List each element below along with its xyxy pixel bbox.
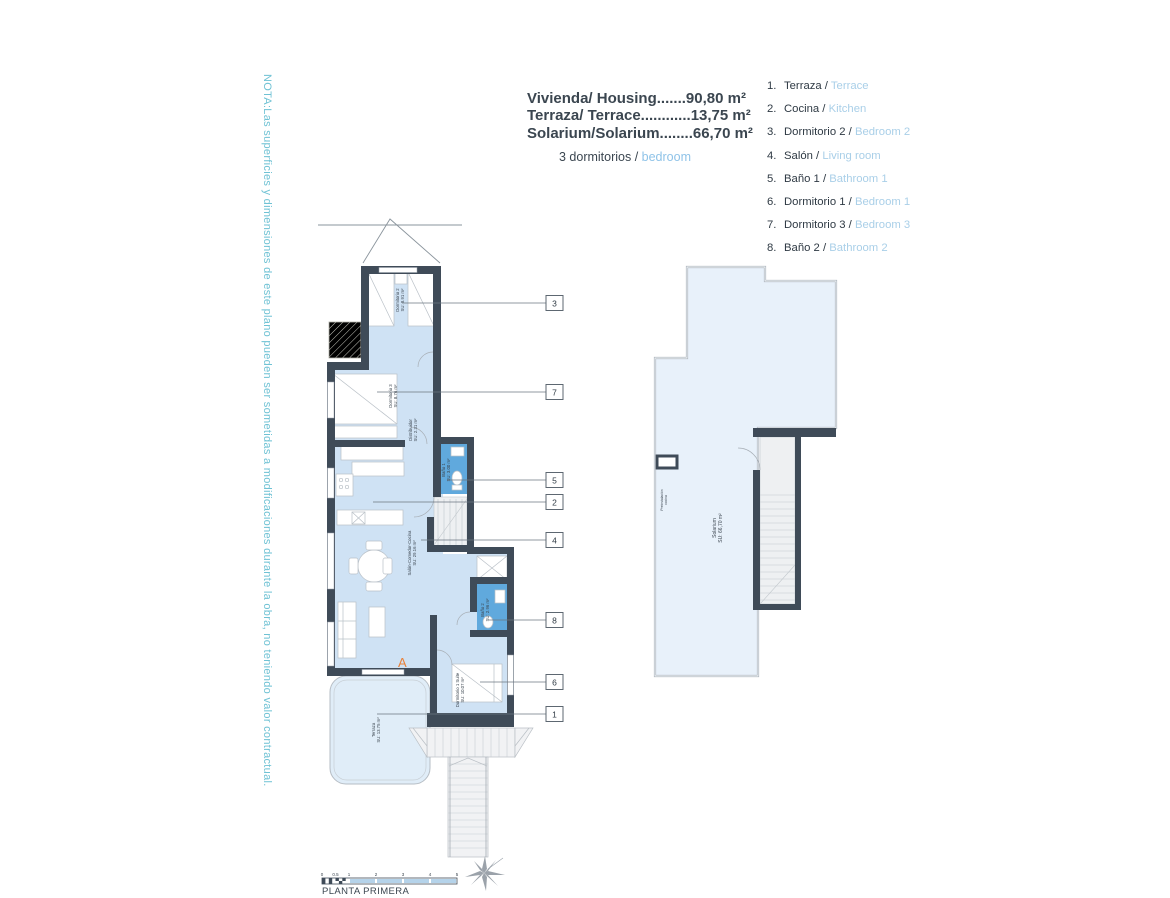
svg-text:1: 1 <box>348 872 351 877</box>
terrace-area-line: Terraza/ Terrace............13,75 m² <box>527 107 727 124</box>
scale-segments <box>322 878 457 884</box>
main-floor-plan: Dormitorio 2SU: 8.91 m² Dormitorio 3SU: … <box>300 198 590 870</box>
solarium-area <box>655 267 836 676</box>
callout-3: 3 <box>546 296 563 311</box>
bedrooms-subtitle: 3 dormitorios / bedroom <box>527 150 723 164</box>
label-dormitorio2: Dormitorio 2SU: 8.91 m² <box>395 288 405 312</box>
callout-1: 1 <box>546 707 563 722</box>
legend-item-dormitorio1: 6.Dormitorio 1 / Bedroom 1 <box>767 196 957 219</box>
svg-text:5: 5 <box>456 872 459 877</box>
legend-item-bano1: 5.Baño 1 / Bathroom 1 <box>767 173 957 196</box>
scale-ticks: 0 0.5 1 2 3 4 5 <box>321 872 459 877</box>
legend-item-salon: 4.Salón / Living room <box>767 150 957 173</box>
stair-core <box>434 497 467 547</box>
callout-boxes: 3 7 5 2 4 8 6 1 <box>546 296 563 722</box>
floor-plan-sheet: NOTA:Las superficies y dimensiones de es… <box>0 0 1170 896</box>
room-legend: 1.Terraza / Terrace 2.Cocina / Kitchen 3… <box>767 80 957 266</box>
compass-icon <box>460 853 510 895</box>
label-dormitorio3: Dormitorio 3SU: 8.76 m² <box>388 384 398 408</box>
solarium-plan: SolariumSU: 66,70 m² Preinstalacióncocin… <box>645 258 850 688</box>
scale-bar: 0 0.5 1 2 3 4 5 PLANTA PRIMERA <box>318 868 478 898</box>
label-suite: Dormitorio 1 SuiteSU: 10.07 m² <box>455 672 465 707</box>
callout-7: 7 <box>546 385 563 400</box>
block-letter: A <box>398 655 407 670</box>
legend-item-dormitorio3: 7.Dormitorio 3 / Bedroom 3 <box>767 219 957 242</box>
legend-item-dormitorio2: 3.Dormitorio 2 / Bedroom 2 <box>767 126 957 149</box>
vent-box <box>657 456 677 468</box>
svg-text:5: 5 <box>552 476 557 486</box>
callout-6: 6 <box>546 675 563 690</box>
svg-text:6: 6 <box>552 678 557 688</box>
svg-text:3: 3 <box>402 872 405 877</box>
callout-2: 2 <box>546 495 563 510</box>
area-summary: Vivienda/ Housing.......90,80 m² Terraza… <box>527 90 727 142</box>
legend-item-cocina: 2.Cocina / Kitchen <box>767 103 957 126</box>
svg-text:7: 7 <box>552 388 557 398</box>
housing-area-line: Vivienda/ Housing.......90,80 m² <box>527 90 727 107</box>
svg-text:4: 4 <box>429 872 432 877</box>
svg-text:2: 2 <box>375 872 378 877</box>
callout-8: 8 <box>546 613 563 628</box>
disclaimer-note: NOTA:Las superficies y dimensiones de es… <box>255 74 273 784</box>
label-distribuidor: DistribuidorSU: 2.31 m² <box>408 418 418 441</box>
callout-5: 5 <box>546 473 563 488</box>
roof-outline <box>318 219 462 263</box>
svg-text:2: 2 <box>552 498 557 508</box>
bedrooms-subtitle-en: bedroom <box>642 150 691 164</box>
svg-text:0: 0 <box>321 872 324 877</box>
svg-text:8: 8 <box>552 616 557 626</box>
svg-text:1: 1 <box>552 710 557 720</box>
svg-text:3: 3 <box>552 299 557 309</box>
planter <box>329 322 361 358</box>
bedrooms-subtitle-es: 3 dormitorios / <box>559 150 642 164</box>
plan-name: PLANTA PRIMERA <box>322 886 410 897</box>
callout-4: 4 <box>546 533 563 548</box>
svg-text:0.5: 0.5 <box>332 872 339 877</box>
solarium-area-line: Solarium/Solarium........66,70 m² <box>527 125 727 142</box>
exterior-stairs <box>409 728 533 857</box>
legend-item-terraza: 1.Terraza / Terrace <box>767 80 957 103</box>
svg-text:4: 4 <box>552 536 557 546</box>
